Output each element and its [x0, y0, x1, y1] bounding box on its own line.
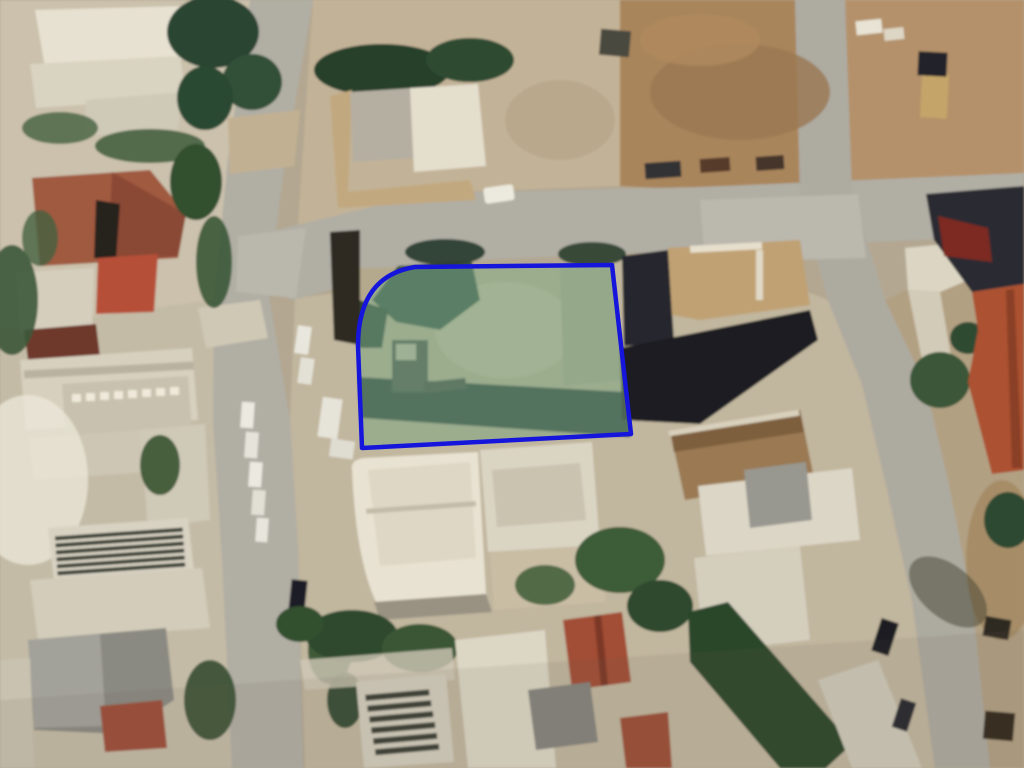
tree-right-1 [910, 352, 970, 408]
parked-car-1 [240, 402, 255, 429]
tree-bc-6 [515, 565, 575, 605]
parked-car-2 [244, 432, 259, 459]
8-row [72, 394, 81, 402]
rubble-car-3 [756, 155, 785, 171]
8-row [170, 387, 179, 395]
dirt-patch-3 [505, 80, 615, 160]
white-objects-tr-2 [883, 27, 904, 41]
aerial-photo-viewport [0, 0, 1024, 768]
bldg-compound-white [410, 84, 486, 172]
aerial-photo [0, 0, 1024, 768]
parked-car-3 [248, 462, 263, 488]
white-big-inner [368, 462, 476, 566]
dirt-dark-object [599, 29, 631, 58]
tree-left-edge-2 [22, 210, 58, 266]
8-row [86, 393, 95, 401]
8-row [142, 389, 151, 397]
8-row [114, 391, 123, 399]
white-objects-tr-1 [855, 19, 882, 36]
rubble-car-1 [644, 161, 681, 179]
tree-mid-2 [196, 216, 232, 308]
bldg-white-l2 [30, 568, 210, 640]
tree-tl-5 [22, 112, 98, 144]
tree-tl-4 [177, 66, 233, 130]
red-house-chimney-shadow [94, 200, 120, 260]
construction-white-edge-2 [756, 250, 763, 300]
tree-mid-1 [170, 144, 222, 220]
8-row [128, 390, 137, 398]
tree-bc-3 [276, 606, 324, 642]
parked-car-4 [251, 490, 266, 516]
8-row [100, 392, 109, 400]
shadow-west-of-parcel [330, 230, 360, 345]
parcel-annotation-layer [358, 265, 631, 448]
bldg-maroon-roof [24, 324, 100, 360]
truck-trailer [920, 73, 949, 118]
bldg-tl-tan [228, 110, 300, 174]
bldg-br-gray [744, 462, 812, 528]
tree-bc-5 [627, 580, 693, 632]
road-left-patch [236, 228, 306, 298]
dirt-patch-2 [640, 14, 760, 66]
tree-wl [140, 435, 180, 495]
car-white-3 [329, 438, 355, 459]
8-row [156, 388, 165, 396]
bldg-compound-gray [350, 88, 416, 162]
tree-parcel-north-2 [405, 239, 485, 265]
tree-parcel-north-1 [558, 242, 626, 266]
rubble-car-2 [700, 157, 731, 173]
construction-dark-wing [622, 250, 674, 346]
parcel-highlight [358, 265, 631, 448]
truck-cab [917, 51, 947, 76]
white-2-inner [492, 463, 586, 527]
parked-car-5 [255, 518, 269, 543]
bldg-red-terrace [96, 254, 158, 314]
tree-compound-2 [426, 38, 514, 82]
